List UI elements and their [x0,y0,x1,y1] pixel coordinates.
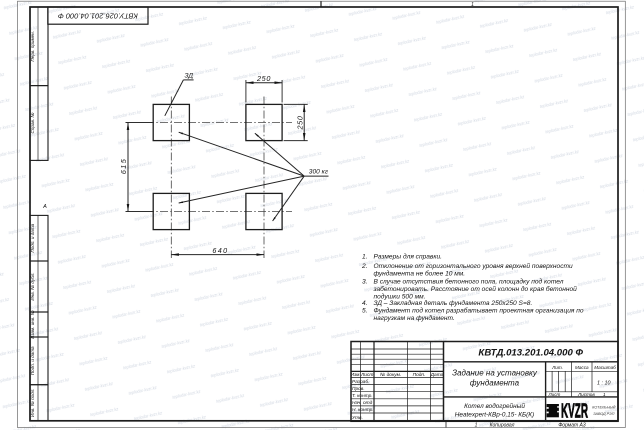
svg-text:Дата: Дата [430,372,444,378]
svg-text:Изм.: Изм. [351,372,361,378]
svg-text:Копировал: Копировал [490,422,515,428]
svg-text:А: А [42,204,47,210]
svg-text:ЗД – Закладная деталь фундамен: ЗД – Закладная деталь фундамента 250х250… [374,299,533,307]
svg-text:Масса: Масса [575,365,589,370]
svg-text:Задание на установку: Задание на установку [452,368,538,377]
svg-text:Листов: Листов [577,392,595,397]
svg-text:1: 1 [475,422,478,428]
svg-text:КОТЕЛЬНЫЙ: КОТЕЛЬНЫЙ [592,405,616,409]
svg-text:Т. контр.: Т. контр. [352,393,373,399]
svg-text:1 : 10: 1 : 10 [597,381,611,387]
svg-text:3.: 3. [362,278,368,285]
svg-text:4.: 4. [362,300,368,307]
svg-text:5.: 5. [362,307,368,314]
svg-text:Н. контр.: Н. контр. [352,407,374,413]
svg-text:Подп. и дата: Подп. и дата [30,223,35,252]
svg-text:1.: 1. [362,253,368,260]
svg-text:Подп. и дата: Подп. и дата [30,346,35,375]
svg-text:ЗД: ЗД [185,73,194,80]
svg-text:Утв.: Утв. [352,415,363,421]
svg-text:2.: 2. [361,263,368,270]
svg-text:250: 250 [256,74,271,83]
svg-text:Лист: Лист [360,372,373,378]
svg-text:Котел водогрейный: Котел водогрейный [464,402,525,410]
svg-text:В случае отсутствия бетонного: В случае отсутствия бетонного пола, площ… [374,277,564,285]
svg-text:№ докум.: № докум. [380,372,401,378]
svg-text:300 кг: 300 кг [309,168,329,175]
svg-text:Фундамент под котел разрабатыв: Фундамент под котел разрабатывает проект… [374,306,584,314]
svg-text:640: 640 [212,246,228,255]
svg-text:Инв. № подл.: Инв. № подл. [30,388,35,417]
svg-text:615: 615 [119,158,128,174]
svg-text:Формат А3: Формат А3 [558,422,586,428]
svg-text:Масштаб: Масштаб [594,365,616,370]
svg-text:Подп.: Подп. [413,372,426,378]
svg-text:KVZR: KVZR [561,401,588,423]
svg-text:250: 250 [295,115,304,130]
svg-text:нагрузкам на фундамент.: нагрузкам на фундамент. [374,314,455,322]
svg-text:Размеры для справки.: Размеры для справки. [374,252,443,260]
svg-text:Heatexpert-КВр-0,15- КБ(К): Heatexpert-КВр-0,15- КБ(К) [455,412,534,419]
svg-text:фундамента: фундамента [470,379,520,388]
svg-text:КВТД.013.201.04.000 Ф: КВТД.013.201.04.000 Ф [478,348,583,359]
svg-text:Разраб.: Разраб. [352,379,369,385]
svg-text:забетонировать. Расстояние от: забетонировать. Расстояние от осей колон… [373,285,578,293]
svg-text:Лист: Лист [548,392,561,397]
svg-text:1: 1 [471,2,474,8]
svg-text:фундамента не более 10 мм.: фундамента не более 10 мм. [374,270,466,278]
svg-text:Отклонение от горизонтального: Отклонение от горизонтального уровня вер… [374,262,573,270]
svg-text:Нач. отд: Нач. отд [352,400,373,406]
svg-text:1: 1 [603,392,606,397]
svg-text:КВТУ.026.201.04.000 Ф: КВТУ.026.201.04.000 Ф [58,12,138,21]
svg-text:Справ. №: Справ. № [30,113,35,134]
svg-text:Пров.: Пров. [352,386,365,392]
svg-text:ЗАВОД РЭП: ЗАВОД РЭП [593,412,614,416]
svg-text:Лит.: Лит. [551,365,563,370]
svg-text:Инв. № дубл.: Инв. № дубл. [30,272,35,300]
svg-text:Взам. инв. №: Взам. инв. № [30,310,35,338]
svg-text:Перв. примен.: Перв. примен. [30,31,35,62]
